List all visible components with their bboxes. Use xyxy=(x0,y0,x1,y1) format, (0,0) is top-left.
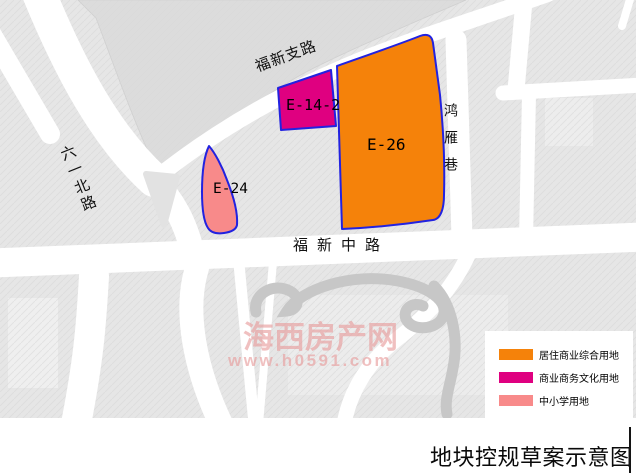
legend-label: 商业商务文化用地 xyxy=(539,370,619,385)
legend: 居住商业综合用地 商业商务文化用地 中小学用地 xyxy=(485,331,633,419)
road-right-vertical-top xyxy=(516,0,525,90)
legend-swatch-school xyxy=(499,395,533,406)
road-below-left xyxy=(76,276,94,418)
legend-item-school: 中小学用地 xyxy=(499,389,633,412)
road-right-vertical-mid xyxy=(526,94,529,240)
drawing-frame-line xyxy=(629,427,631,473)
plan-schematic-image: 福新支路 六一北路 鸿雁巷 福新中路 E-14-2 E-26 E-24 海西房产… xyxy=(0,0,636,473)
legend-label: 居住商业综合用地 xyxy=(539,347,619,362)
parcel-label-e-14-2: E-14-2 xyxy=(286,98,340,113)
legend-item-business-culture: 商业商务文化用地 xyxy=(499,366,633,389)
parcel-label-e-24: E-24 xyxy=(213,182,248,197)
parcel-e-26 xyxy=(337,35,444,229)
drawing-title: 地块控规草案示意图 xyxy=(430,440,633,472)
watermark-site-url: www.h0591.com xyxy=(228,351,392,371)
legend-swatch-business-culture xyxy=(499,372,533,383)
legend-label: 中小学用地 xyxy=(539,393,589,408)
road-label-fuxin-middle: 福新中路 xyxy=(293,238,389,253)
legend-swatch-residential-commercial xyxy=(499,349,533,360)
road-label-hongyan-lane: 鸿雁巷 xyxy=(444,103,458,184)
legend-item-residential-commercial: 居住商业综合用地 xyxy=(499,343,633,366)
parcel-label-e-26: E-26 xyxy=(367,137,406,153)
